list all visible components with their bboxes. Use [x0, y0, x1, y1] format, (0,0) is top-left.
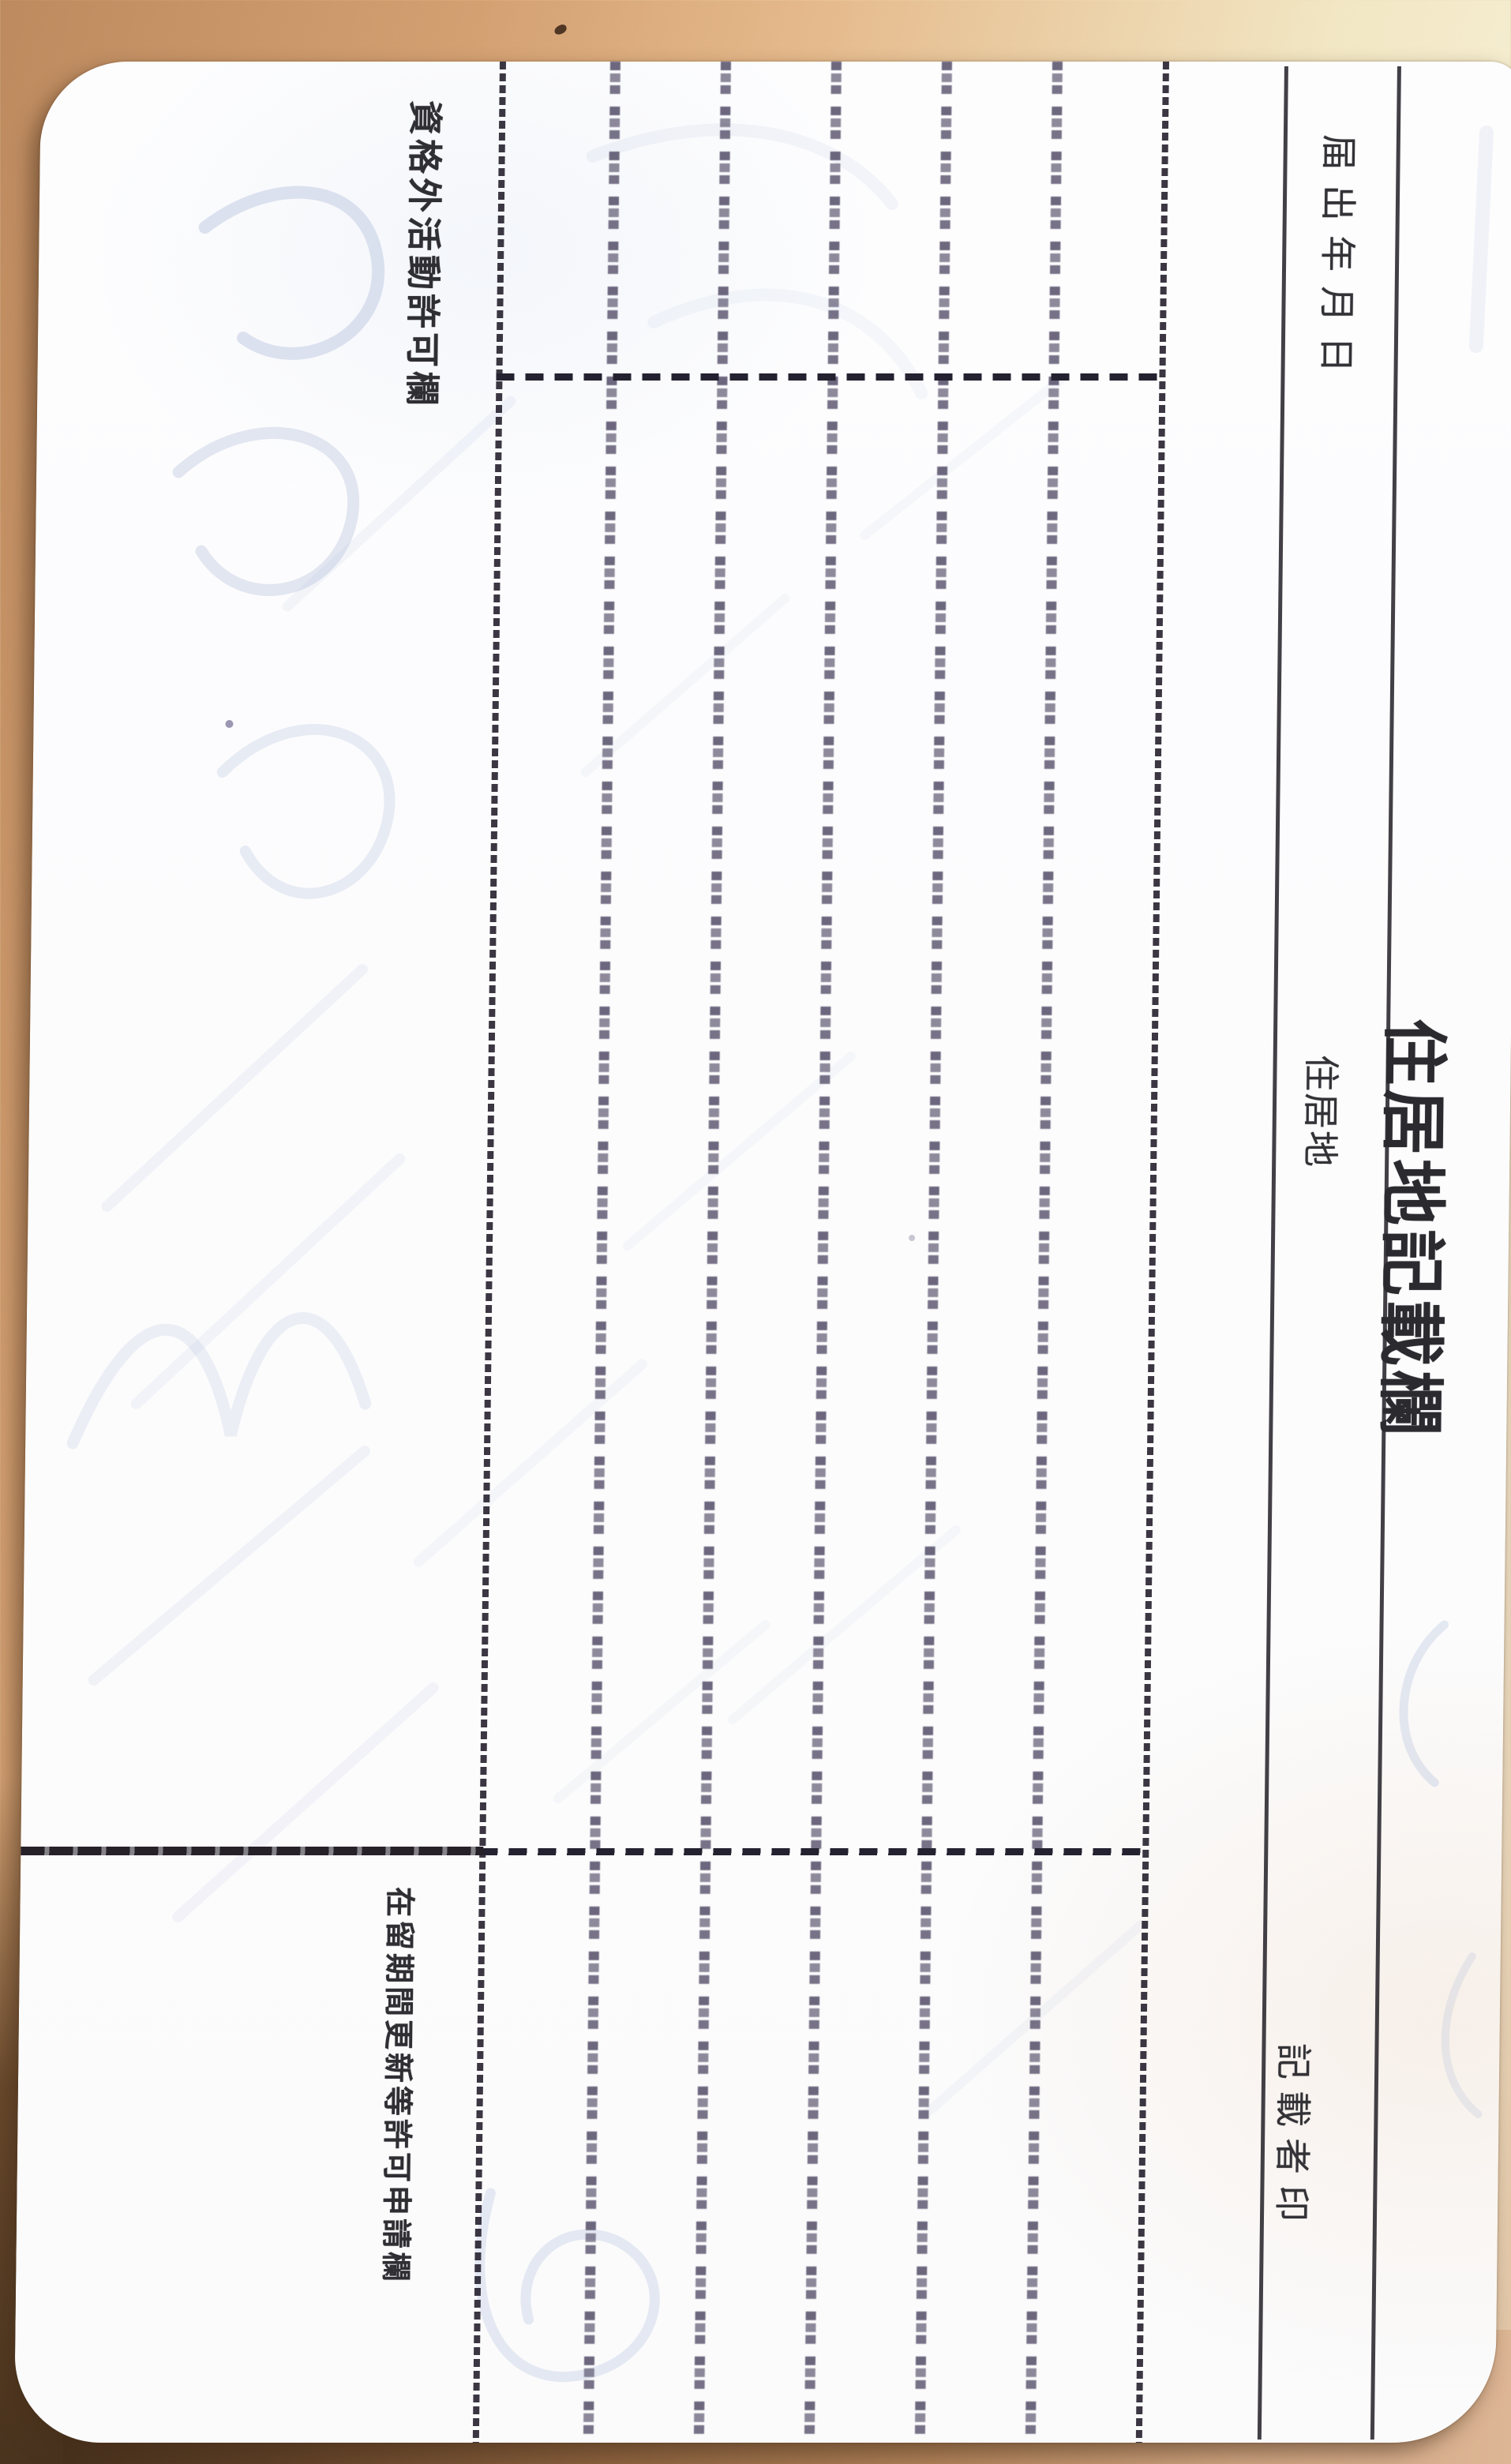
- column-separator-dashed-upper: [496, 373, 1160, 381]
- column-header-recorder-seal: 記載者印: [1269, 2043, 1313, 2241]
- desk-speck: [553, 24, 568, 36]
- section-header-stay-extension-application: 在留期間更新等許可申請欄: [376, 1887, 415, 2294]
- column-separator-dashed-lower: [479, 1848, 1144, 1855]
- section-divider-line: [21, 1847, 483, 1855]
- column-header-residence: 住居地: [1298, 1055, 1340, 1168]
- page-title: 住居地記載欄: [1367, 1018, 1448, 1445]
- photo-of-registration-booklet-page: { "page": { "title": "住居地記載欄", "column_h…: [0, 0, 1511, 2464]
- section-header-activity-permission: 資格外活動許可欄: [400, 100, 444, 416]
- registration-page: 住居地記載欄 届出年月日 住居地 記載者印 資格外活動許可欄 在留期間更新等許可…: [14, 62, 1511, 2443]
- column-header-notification-date: 届出年月日: [1314, 134, 1358, 395]
